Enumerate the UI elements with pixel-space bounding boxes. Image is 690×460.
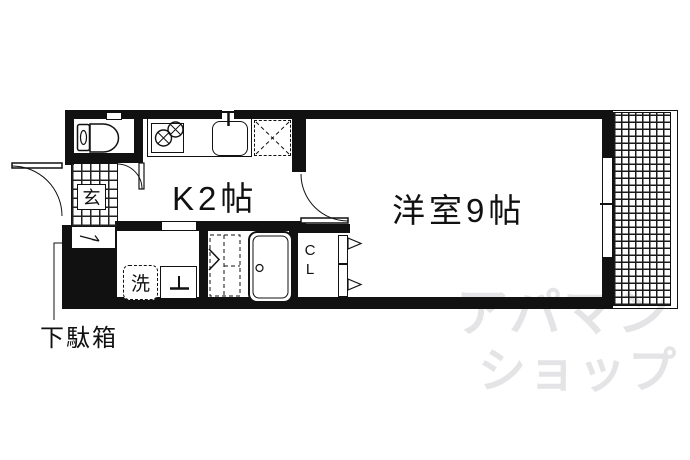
lineart-layer — [0, 0, 690, 460]
stove-burner-left-ticks — [158, 132, 170, 144]
closet-door-panel-bottom — [339, 265, 348, 297]
hall-door-swing-arc — [117, 164, 142, 189]
shoe-cabinet-leader-line — [54, 243, 72, 320]
closet-door-panel-top — [339, 236, 348, 264]
bathtub-outer — [249, 232, 292, 302]
stove-burner-right-ticks — [170, 124, 181, 135]
front-door-leaf — [12, 163, 62, 168]
shoe-cabinet-label: 下駄箱 — [40, 318, 118, 353]
refrigerator-x — [256, 122, 289, 154]
toilet-bowl — [90, 124, 119, 152]
mainroom-label: 洋室9帖 — [392, 184, 525, 232]
mainroom-door-swing-arc — [301, 174, 348, 221]
entrance-label: 玄 — [83, 184, 101, 210]
closet-door-arrow-bottom — [348, 279, 361, 290]
kitchen-label: K2帖 — [172, 172, 257, 220]
toilet-tank — [78, 125, 90, 151]
bathtub-drain — [256, 265, 263, 272]
closet-label-c: C — [299, 241, 321, 260]
closet-door-arrow-top — [348, 238, 361, 249]
closet-label-l: L — [299, 260, 321, 279]
shoe-cabinet-arrow-icon — [80, 236, 99, 242]
floor-plan: アパマン ショップ 玄 洗 — [0, 0, 690, 460]
front-door-swing-arc — [12, 166, 62, 216]
